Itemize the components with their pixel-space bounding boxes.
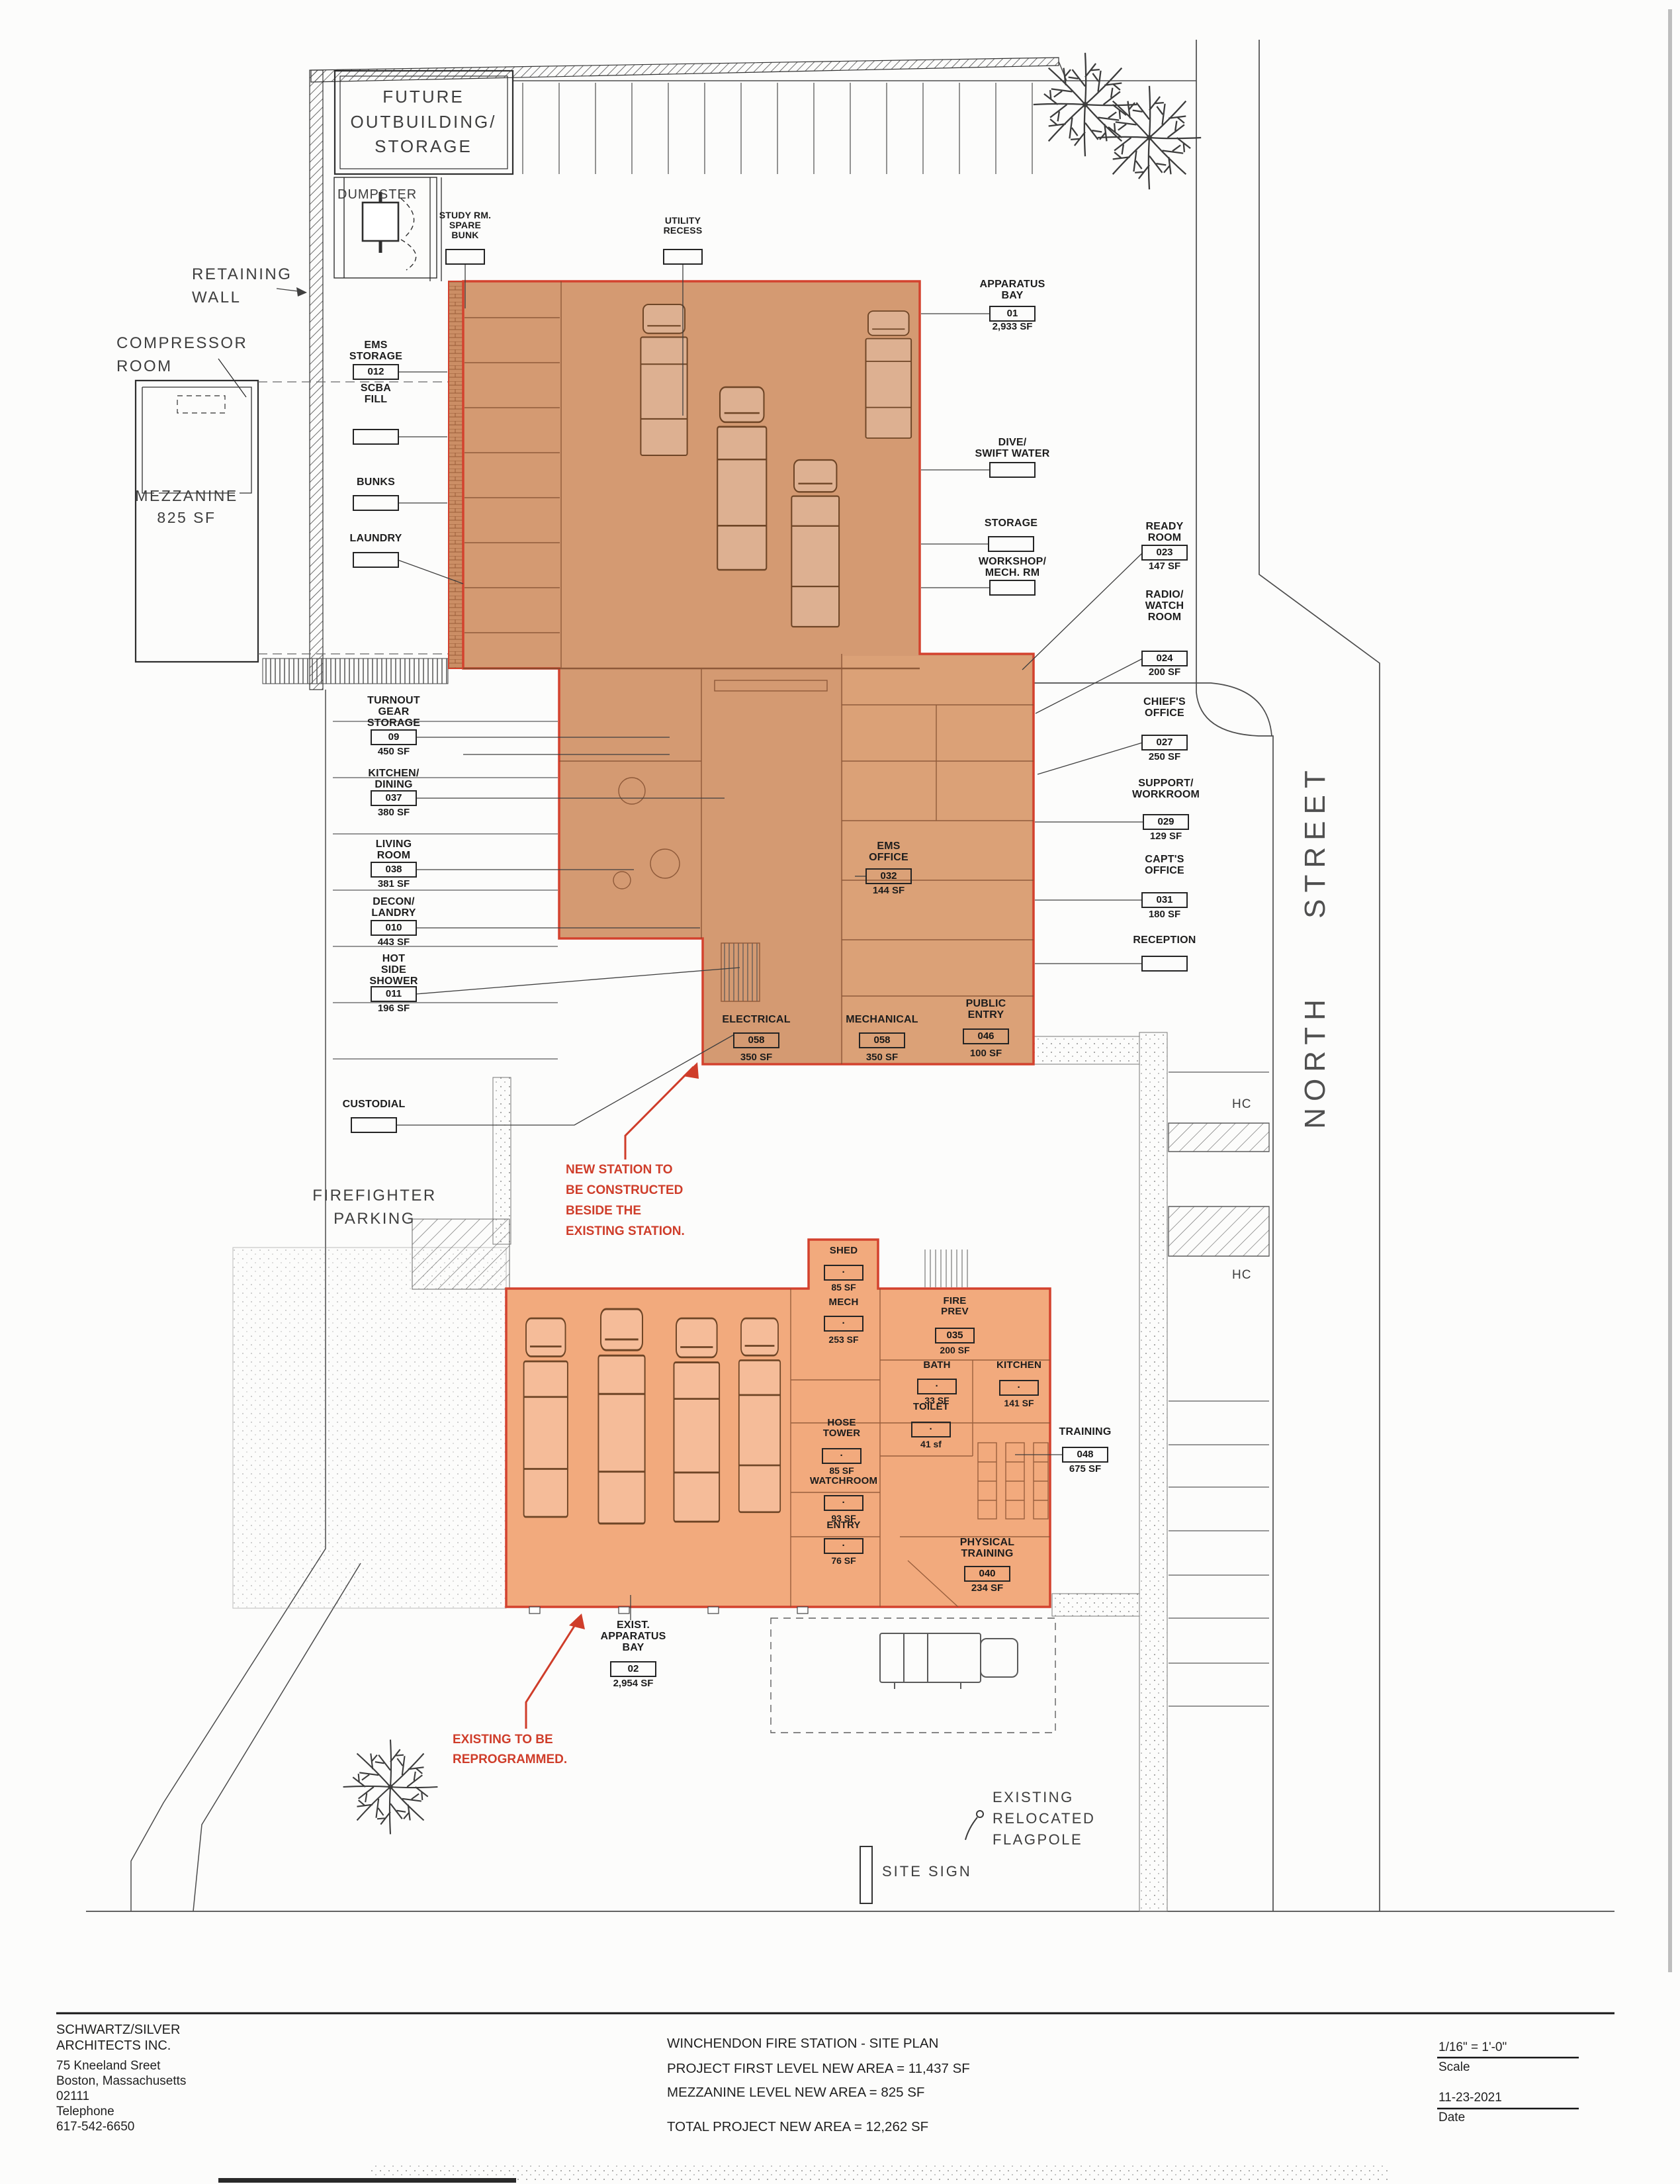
titleblock-date-value: 11-23-2021 xyxy=(1438,2090,1502,2105)
label-bunks: BUNKS xyxy=(357,477,395,488)
roombox-kitchen-dining: 037 xyxy=(371,790,417,806)
label-ems-storage: EMS STORAGE xyxy=(349,340,402,362)
label-dumpster: DUMPSTER xyxy=(337,185,417,205)
titleblock-area-first-level: PROJECT FIRST LEVEL NEW AREA = 11,437 SF xyxy=(667,2061,970,2076)
area-mech: 253 SF xyxy=(828,1334,858,1345)
roombox-bunks xyxy=(353,495,399,511)
titleblock-scale-value: 1/16" = 1'-0" xyxy=(1438,2040,1507,2055)
label-living-room: LIVING ROOM xyxy=(376,839,412,861)
roombox-ems-storage: 012 xyxy=(353,364,399,380)
label-public-entry: PUBLIC ENTRY xyxy=(966,998,1006,1021)
roombox-laundry xyxy=(353,552,399,568)
label-site-sign: SITE SIGN xyxy=(882,1861,972,1882)
label-dive-swift-water: DIVE/ SWIFT WATER xyxy=(975,437,1050,459)
area-ready-room: 147 SF xyxy=(1149,561,1180,572)
titleblock-firm: SCHWARTZ/SILVER ARCHITECTS INC. xyxy=(56,2022,180,2054)
label-fire-prev: FIRE PREV xyxy=(941,1296,969,1317)
scan-bottom-mark xyxy=(218,2178,516,2183)
roombox-fire-prev: 035 xyxy=(935,1328,975,1343)
label-hot-side-shower: HOT SIDE SHOWER xyxy=(369,953,418,987)
label-chiefs-office: CHIEF'S OFFICE xyxy=(1143,696,1186,719)
titleblock-address: 75 Kneeland Sreet Boston, Massachusetts … xyxy=(56,2058,186,2134)
label-training: TRAINING xyxy=(1059,1426,1112,1437)
area-living-room: 381 SF xyxy=(378,879,410,889)
label-flagpole: EXISTING RELOCATED FLAGPOLE xyxy=(993,1787,1095,1850)
roombox-mechanical: 058 xyxy=(859,1032,905,1048)
area-shed: 85 SF xyxy=(831,1282,856,1293)
note-existing-station: EXISTING TO BE REPROGRAMMED. xyxy=(453,1730,567,1770)
roombox-reception xyxy=(1141,956,1188,972)
label-reception: RECEPTION xyxy=(1133,934,1196,946)
roombox-chiefs-office: 027 xyxy=(1141,735,1188,751)
area-hot-side-shower: 196 SF xyxy=(378,1003,410,1014)
area-support-workroom: 129 SF xyxy=(1150,831,1182,842)
roombox-entry: · xyxy=(824,1538,863,1554)
label-support-workroom: SUPPORT/ WORKROOM xyxy=(1132,778,1200,800)
label-capts-office: CAPT'S OFFICE xyxy=(1145,854,1184,876)
new-station-arrowhead xyxy=(683,1062,699,1079)
label-kitchen: KITCHEN xyxy=(996,1360,1041,1371)
roombox-training: 048 xyxy=(1062,1447,1108,1463)
titleblock-scale-label: Scale xyxy=(1438,2060,1470,2075)
area-chiefs-office: 250 SF xyxy=(1149,752,1180,762)
label-ready-room: READY ROOM xyxy=(1145,521,1183,543)
existing-arrowhead xyxy=(569,1614,585,1629)
roombox-physical-training: 040 xyxy=(964,1566,1010,1582)
area-entry: 76 SF xyxy=(831,1555,856,1566)
area-kitchen-dining: 380 SF xyxy=(378,807,410,818)
area-training: 675 SF xyxy=(1069,1464,1101,1475)
roombox-living-room: 038 xyxy=(371,862,417,878)
label-mech: MECH xyxy=(829,1297,859,1308)
label-mechanical: MECHANICAL xyxy=(846,1014,918,1025)
site-plan-page: FUTURE OUTBUILDING/ STORAGE DUMPSTER RET… xyxy=(0,0,1680,2184)
label-storage: STORAGE xyxy=(985,518,1038,529)
label-retaining-wall: RETAINING WALL xyxy=(192,263,292,310)
roombox-hot-side-shower: 011 xyxy=(371,986,417,1002)
label-physical-training: PHYSICAL TRAINING xyxy=(960,1537,1015,1559)
area-ems-office: 144 SF xyxy=(873,886,905,896)
label-hc-upper: HC xyxy=(1232,1095,1251,1114)
roombox-shed: · xyxy=(824,1265,863,1281)
roombox-apparatus-bay: 01 xyxy=(989,306,1036,322)
roombox-electrical: 058 xyxy=(733,1032,779,1048)
area-radio-watch-room: 200 SF xyxy=(1149,667,1180,678)
roombox-capts-office: 031 xyxy=(1141,892,1188,908)
roombox-hose-tower: · xyxy=(822,1448,862,1464)
firefighter-parking-stalls xyxy=(333,721,558,1059)
label-laundry: LAUNDRY xyxy=(349,533,402,544)
roombox-study-room xyxy=(445,249,485,265)
roombox-dive-swift-water xyxy=(989,462,1036,478)
area-toilet: 41 sf xyxy=(920,1439,942,1449)
scan-edge-shadow xyxy=(1668,9,1672,1972)
roombox-toilet: · xyxy=(911,1422,951,1437)
flagpole-symbol xyxy=(965,1811,983,1840)
label-watchroom: WATCHROOM xyxy=(810,1476,877,1486)
roombox-custodial xyxy=(351,1117,397,1133)
roombox-exist-apparatus-bay: 02 xyxy=(610,1661,656,1677)
label-hose-tower: HOSE TOWER xyxy=(823,1418,861,1439)
label-entry: ENTRY xyxy=(826,1520,860,1531)
label-hc-lower: HC xyxy=(1232,1266,1251,1285)
titleblock-area-mezzanine: MEZZANINE LEVEL NEW AREA = 825 SF xyxy=(667,2085,924,2100)
area-kitchen: 141 SF xyxy=(1004,1398,1034,1408)
roombox-utility-recess xyxy=(663,249,703,265)
label-shed: SHED xyxy=(830,1246,858,1256)
roombox-storage xyxy=(988,536,1034,552)
roombox-decon-landry: 010 xyxy=(371,920,417,936)
area-fire-prev: 200 SF xyxy=(940,1345,969,1355)
area-electrical: 350 SF xyxy=(740,1052,772,1063)
roombox-watchroom: · xyxy=(824,1495,863,1511)
label-turnout-gear: TURNOUT GEAR STORAGE xyxy=(367,695,420,729)
area-decon-landry: 443 SF xyxy=(378,937,410,948)
site-plan-linework xyxy=(0,0,1680,2184)
area-exist-apparatus-bay: 2,954 SF xyxy=(613,1678,654,1689)
top-parking-stalls xyxy=(523,83,1032,174)
area-apparatus-bay: 2,933 SF xyxy=(993,322,1033,332)
area-capts-office: 180 SF xyxy=(1149,909,1180,920)
label-bath: BATH xyxy=(923,1360,950,1371)
area-physical-training: 234 SF xyxy=(971,1583,1003,1594)
roombox-bath: · xyxy=(917,1379,957,1394)
label-north-street: NORTH STREET xyxy=(1301,715,1330,1178)
roombox-radio-watch-room: 024 xyxy=(1141,651,1188,666)
street-parking-stalls xyxy=(1169,1072,1269,1706)
label-decon-landry: DECON/ LANDRY xyxy=(371,896,416,919)
label-utility-recess: UTILITY RECESS xyxy=(664,216,703,236)
site-sign-symbol xyxy=(860,1846,872,1903)
roombox-public-entry: 046 xyxy=(963,1028,1009,1044)
roombox-workshop-mech xyxy=(989,580,1036,596)
roombox-scba-fill xyxy=(353,429,399,445)
roombox-ready-room: 023 xyxy=(1141,545,1188,561)
label-ems-office: EMS OFFICE xyxy=(869,841,908,863)
area-public-entry: 100 SF xyxy=(970,1048,1002,1059)
roombox-mech: · xyxy=(824,1316,863,1332)
label-custodial: CUSTODIAL xyxy=(343,1099,406,1110)
label-exist-apparatus-bay: EXIST. APPARATUS BAY xyxy=(601,1619,666,1653)
note-new-station: NEW STATION TO BE CONSTRUCTED BESIDE THE… xyxy=(566,1160,685,1242)
label-electrical: ELECTRICAL xyxy=(722,1014,790,1025)
titleblock-drawing-title: WINCHENDON FIRE STATION - SITE PLAN xyxy=(667,2036,938,2051)
label-kitchen-dining: KITCHEN/ DINING xyxy=(368,768,419,790)
roombox-kitchen: · xyxy=(999,1380,1039,1396)
titleblock-date-label: Date xyxy=(1438,2110,1465,2125)
area-mechanical: 350 SF xyxy=(866,1052,898,1063)
label-study-room: STUDY RM. SPARE BUNK xyxy=(439,210,492,240)
label-radio-watch-room: RADIO/ WATCH ROOM xyxy=(1145,589,1184,623)
label-future-outbuilding: FUTURE OUTBUILDING/ STORAGE xyxy=(351,85,497,159)
roombox-turnout-gear: 09 xyxy=(371,729,417,745)
label-apparatus-bay: APPARATUS BAY xyxy=(980,279,1045,301)
label-firefighter-parking: FIREFIGHTER PARKING xyxy=(312,1185,437,1231)
titleblock-area-total: TOTAL PROJECT NEW AREA = 12,262 SF xyxy=(667,2119,928,2134)
label-mezzanine: MEZZANINE 825 SF xyxy=(135,485,238,529)
label-workshop-mech: WORKSHOP/ MECH. RM xyxy=(979,556,1046,578)
label-scba-fill: SCBA FILL xyxy=(361,383,391,405)
roombox-support-workroom: 029 xyxy=(1143,814,1189,830)
retaining-wall-arrowhead xyxy=(296,287,307,296)
area-turnout-gear: 450 SF xyxy=(378,747,410,757)
area-hose-tower: 85 SF xyxy=(829,1465,854,1476)
apron-and-truck xyxy=(771,1618,1055,1733)
roombox-ems-office: 032 xyxy=(865,868,912,884)
label-compressor-room: COMPRESSOR ROOM xyxy=(116,332,247,379)
label-toilet: TOILET xyxy=(913,1402,949,1412)
